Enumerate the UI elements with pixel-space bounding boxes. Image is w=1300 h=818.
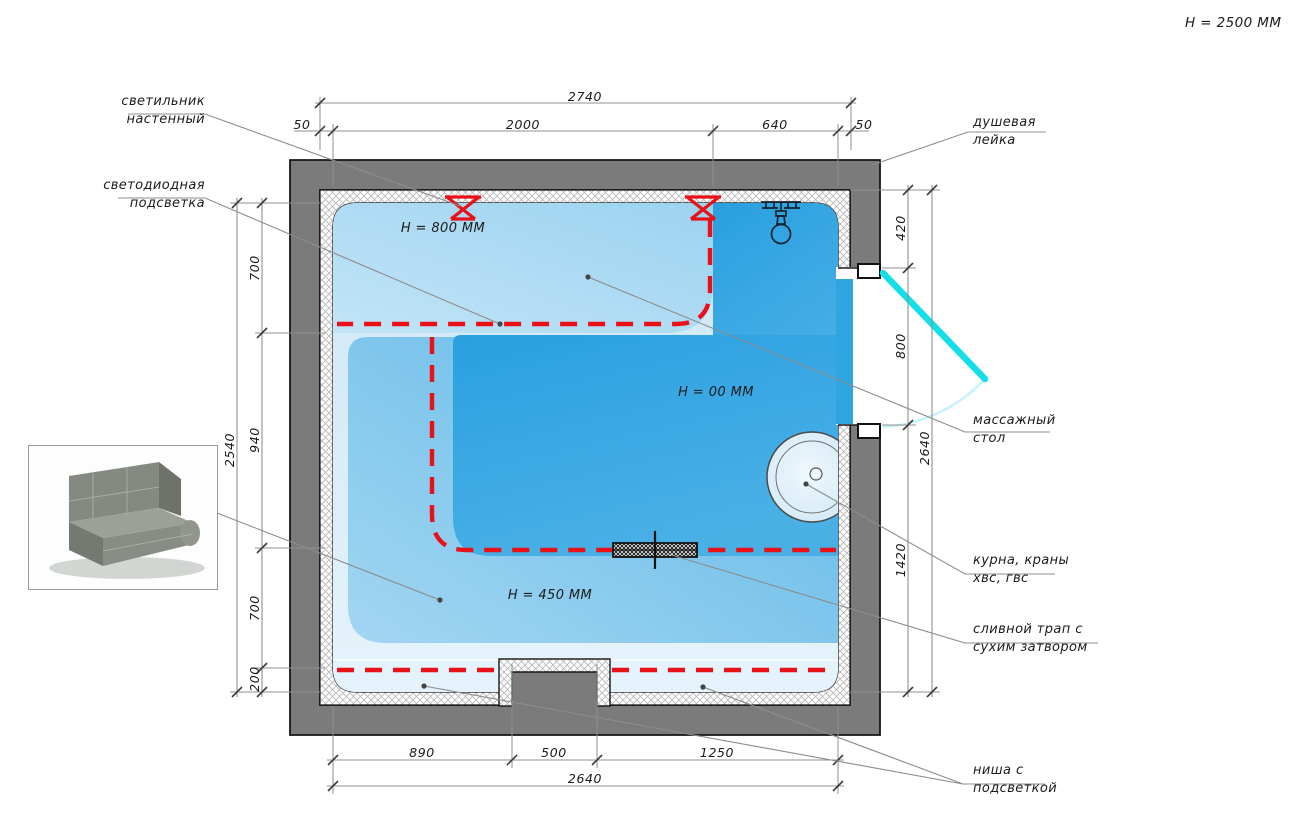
zone-label-floor: Н = 00 ММ (678, 382, 754, 404)
callout-massage-table-2: стол (973, 430, 1056, 448)
callout-kurna: курна, краны хвс, гвс (973, 552, 1069, 588)
callout-led-strip-1: светодиодная (50, 177, 205, 195)
callout-niche-2: подсветкой (973, 780, 1057, 798)
callout-massage-table-1: массажный (973, 412, 1056, 430)
dim-right-total: 2640 (914, 431, 936, 465)
dim-top-seg2: 640 (762, 114, 788, 136)
zone-label-lounger: Н = 800 ММ (401, 218, 485, 240)
callout-massage-table: массажный стол (973, 412, 1056, 448)
callout-wall-light-1: светильник (58, 93, 205, 111)
dim-left-seg3: 200 (244, 666, 266, 692)
callout-drain: сливной трап с сухим затвором (973, 621, 1088, 657)
callout-shower-head-1: душевая (973, 114, 1036, 132)
dim-top-seg1: 2000 (506, 114, 540, 136)
hammam-plan-drawing: Н = 2500 ММ Н = 800 ММ Н = 00 ММ Н = 450… (0, 0, 1300, 818)
zone-label-bench: Н = 450 ММ (508, 585, 592, 607)
dim-left-seg0: 700 (244, 255, 266, 281)
bench-3d-image (28, 445, 218, 590)
callout-kurna-2: хвс, гвс (973, 570, 1069, 588)
dim-right-seg2: 1420 (890, 543, 912, 577)
door-jamb-top (858, 264, 880, 278)
callout-wall-light: светильник настенный (58, 93, 205, 129)
callout-drain-2: сухим затвором (973, 639, 1088, 657)
callout-shower-head: душевая лейка (973, 114, 1036, 150)
dim-bottom-total: 2640 (568, 768, 602, 790)
dim-bottom-seg1: 500 (541, 742, 567, 764)
callout-kurna-1: курна, краны (973, 552, 1069, 570)
dim-left-seg1: 940 (244, 427, 266, 453)
floor-zones (333, 203, 857, 692)
room-height-note: Н = 2500 ММ (1185, 12, 1281, 34)
bench-render (29, 446, 215, 587)
dim-left-total: 2540 (219, 433, 241, 467)
dim-top-total: 2740 (568, 86, 602, 108)
door-leaf (883, 273, 985, 379)
callout-led-strip-2: подсветка (50, 195, 205, 213)
dim-right-seg0: 420 (890, 215, 912, 241)
dim-top-seg3: 50 (855, 114, 872, 136)
callout-shower-head-2: лейка (973, 132, 1036, 150)
dim-top-seg0: 50 (293, 114, 310, 136)
callout-niche-1: ниша с (973, 762, 1057, 780)
bottom-niche-column (499, 659, 610, 733)
zone-lounger-h800 (333, 203, 713, 333)
dim-left-seg2: 700 (244, 595, 266, 621)
door-jamb-bottom (858, 424, 880, 438)
callout-niche: ниша с подсветкой (973, 762, 1057, 798)
callout-drain-1: сливной трап с (973, 621, 1088, 639)
dim-right-seg1: 800 (890, 333, 912, 359)
dim-bottom-seg2: 1250 (700, 742, 734, 764)
callout-wall-light-2: настенный (58, 111, 205, 129)
dim-bottom-seg0: 890 (409, 742, 435, 764)
callout-led-strip: светодиодная подсветка (50, 177, 205, 213)
